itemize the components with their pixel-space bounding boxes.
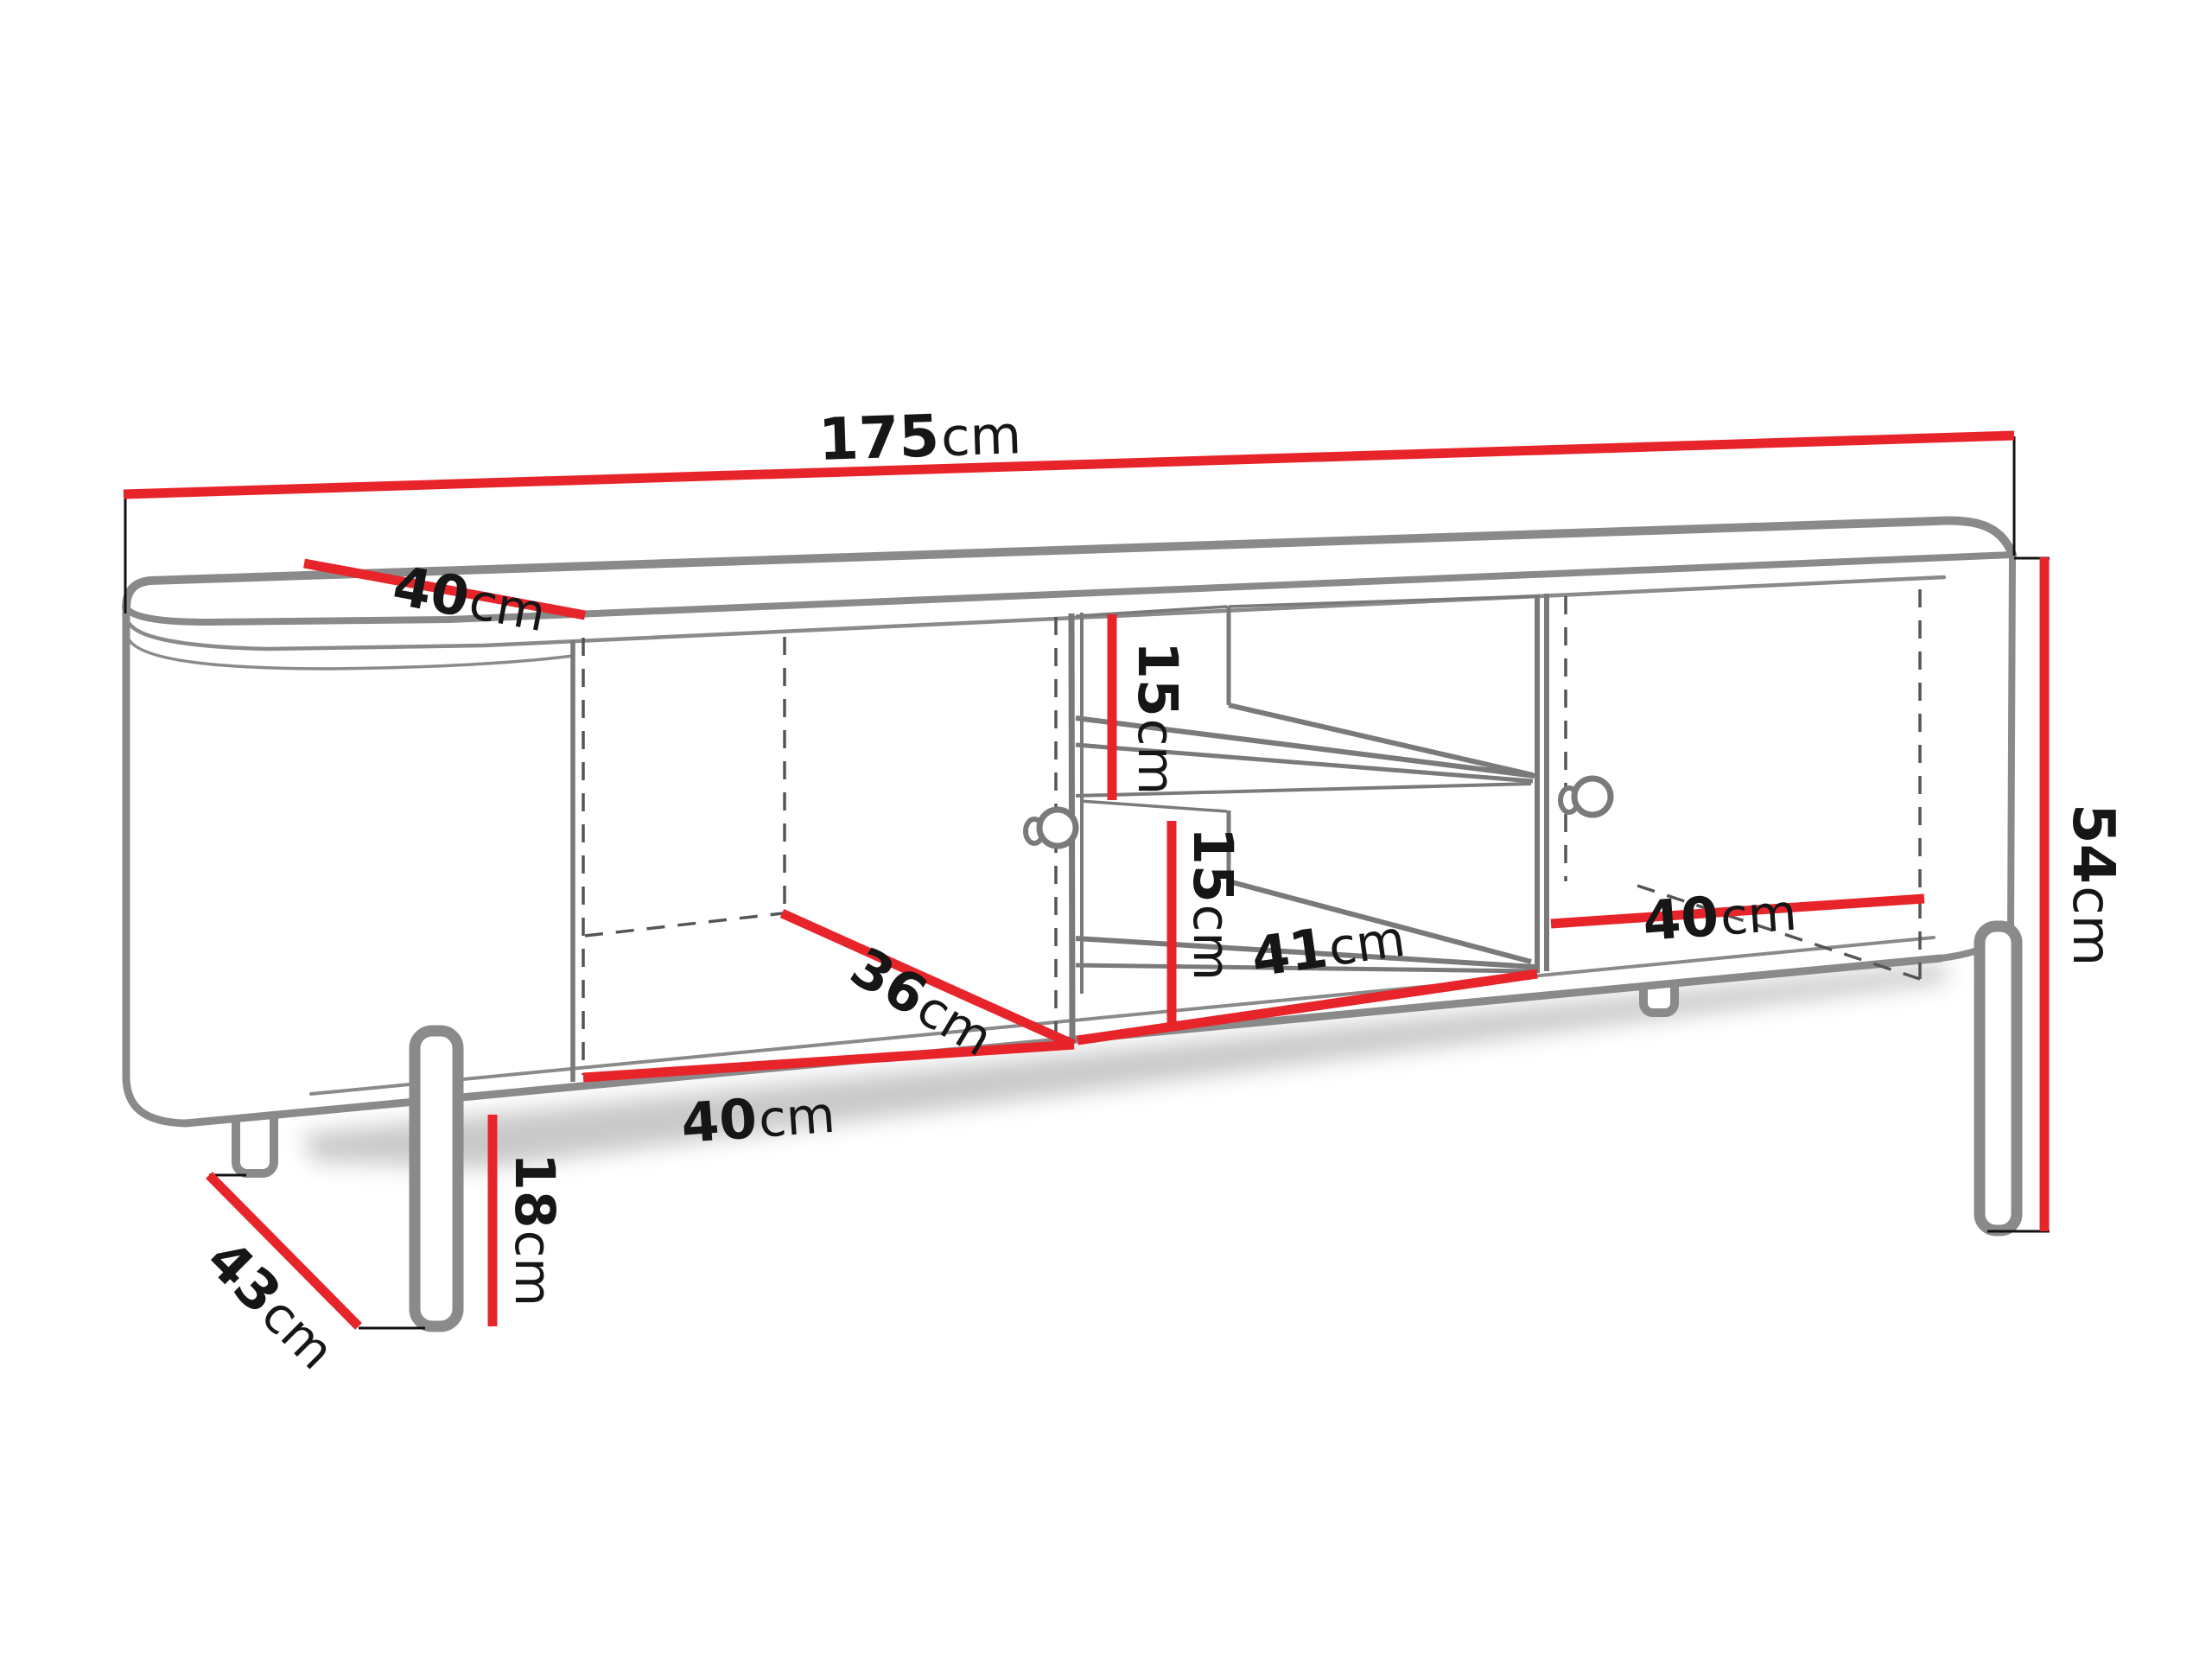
leg-front-right: [1980, 926, 2017, 1230]
label-total-height: 54cm: [2060, 804, 2127, 966]
leg-front-left: [415, 1031, 458, 1326]
right-door-knob-icon: [1574, 779, 1611, 815]
dimension-line-total-width: [124, 435, 2014, 494]
label-total-width: 175cm: [817, 399, 1022, 474]
left-door-knob-icon: [1039, 810, 1076, 846]
page: 175cm 40cm 54cm 15cm 15cm 41cm 36cm 40cm…: [0, 0, 2212, 1659]
label-right-width: 40cm: [1641, 880, 1799, 953]
diagram-canvas: 175cm 40cm 54cm 15cm 15cm 41cm 36cm 40cm…: [0, 0, 2212, 1659]
label-leg-height: 18cm: [503, 1153, 566, 1306]
label-leg-span: 43cm: [194, 1228, 348, 1382]
label-upper-shelf: 15cm: [1126, 641, 1189, 795]
label-lower-shelf: 15cm: [1181, 827, 1244, 981]
label-left-width: 40cm: [679, 1082, 837, 1155]
